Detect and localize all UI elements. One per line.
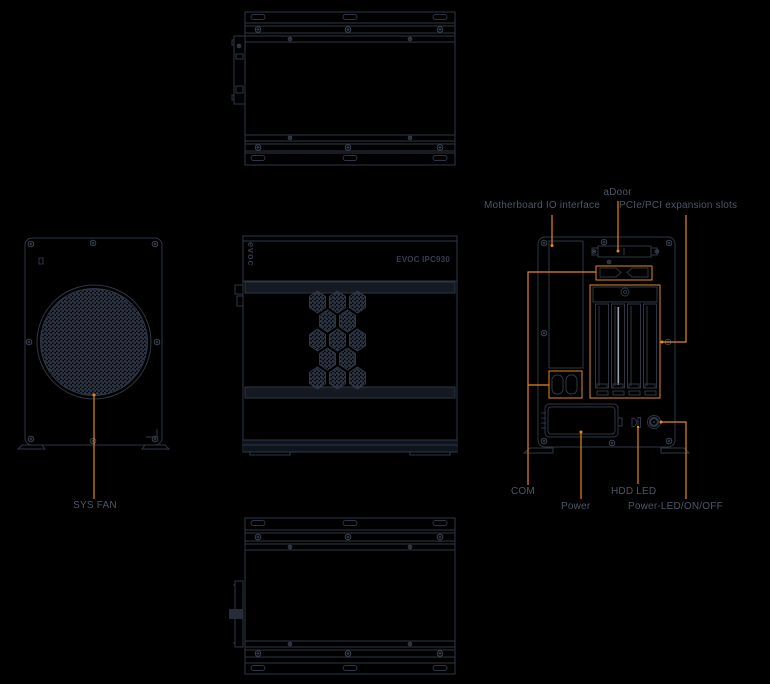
sys-fan-label: SYS FAN [55,501,135,511]
mount-slot [251,156,265,161]
screw-icon [437,27,443,33]
screw-icon [666,240,672,246]
screw-icon [408,642,412,646]
motherboard-io-leader [551,215,554,247]
mount-slot [251,521,265,526]
screw-icon [541,240,547,246]
screw-icon [28,436,34,442]
model-name-text: EVOC IPC930 [370,255,450,264]
screw-icon [288,136,292,140]
front-vent-band-upper [245,282,455,293]
screw-icon [255,145,261,151]
slot-opening [645,391,656,395]
mount-slot [343,15,357,20]
screw-icon [345,651,351,657]
thumbscrew-icon [621,288,629,296]
chassis-foot [524,448,689,453]
screw-icon [288,37,292,41]
screw-icon [152,241,158,247]
screw-icon [592,250,596,254]
bottom-view-mount-flange-upper [245,518,455,530]
screw-icon [255,651,261,657]
screw-icon [255,27,261,33]
adoor-connector [592,246,659,257]
screw-icon [609,440,615,446]
screw-icon [437,534,443,540]
screw-icon [601,239,607,245]
mount-slot [343,156,357,161]
mount-slot [433,156,447,161]
screw-icon [345,145,351,151]
power-led-label: Power-LED/ON/OFF [628,502,723,512]
screw-icon [26,339,32,345]
sys-fan-leader [93,394,96,500]
motherboard-io-area [549,241,583,368]
adoor-label: aDoor [580,188,655,198]
top-view-mount-flange-upper [245,12,455,23]
screw-icon [437,145,443,151]
bottom-view [229,518,455,674]
slot-opening [613,391,624,395]
top-view-side-bracket [232,36,245,104]
power-leader [580,431,583,500]
top-view [232,12,455,165]
screw-icon [345,27,351,33]
honeycomb-vent [310,291,366,389]
chassis-foot [410,452,450,455]
screw-icon [541,330,547,336]
slot-opening [597,391,608,395]
expansion-slots [590,285,660,398]
screw-icon [237,44,241,48]
screw-icon [345,534,351,540]
mount-slot [343,521,357,526]
bottom-view-side-bracket [229,581,243,647]
mount-slot [251,15,265,20]
top-view-mount-flange-lower [245,153,455,165]
screw-icon [437,651,443,657]
side-tab [237,296,243,306]
annotation-leader-lines [93,201,687,499]
side-tab [235,285,243,294]
front-view [235,236,457,455]
power-led-leader [660,421,687,500]
motherboard-io-label: Motherboard IO interface [484,201,600,211]
screw-icon [408,37,412,41]
mount-slot [433,666,447,671]
mount-slot [433,15,447,20]
screw-icon [288,545,292,549]
chassis-foot [250,452,290,455]
screw-icon [90,240,96,246]
screw-icon [154,339,160,345]
mount-slot [251,666,265,671]
brand-logo: evoc [246,242,256,284]
rear-view [524,237,689,453]
screw-icon [541,438,547,444]
slot-cover-highlight [618,307,620,385]
hdd-led [632,418,641,428]
hdd-led-leader [637,426,639,484]
pcie-slots-leader [661,215,687,344]
com-ports [549,371,582,398]
screw-icon [288,642,292,646]
thumbscrew-icon [624,291,627,294]
power-label: Power [561,502,590,512]
slot-opening [629,391,640,395]
diagram-lineart [0,0,770,684]
bottom-view-mount-flange-lower [245,663,455,674]
screw-icon [607,260,611,264]
front-vent-band-lower [245,387,455,398]
screw-icon [408,136,412,140]
mount-slot [343,666,357,671]
screw-icon [666,438,672,444]
hdd-led-label: HDD LED [611,487,656,497]
screw-icon [408,545,412,549]
sys-fan-mesh [41,289,148,396]
com-label: COM [511,487,535,497]
screw-icon [28,241,34,247]
serial-port-pair [596,266,652,280]
screw-icon [255,534,261,540]
slot-brackets [596,304,657,388]
ipc-views-diagram: SYS FAN aDoor Motherboard IO interface P… [0,0,770,684]
mount-slot [433,521,447,526]
power-button [648,416,661,429]
screw-icon [90,438,96,444]
screw-icon [39,258,43,264]
pcie-slots-label: PCIe/PCI expansion slots [619,201,737,211]
